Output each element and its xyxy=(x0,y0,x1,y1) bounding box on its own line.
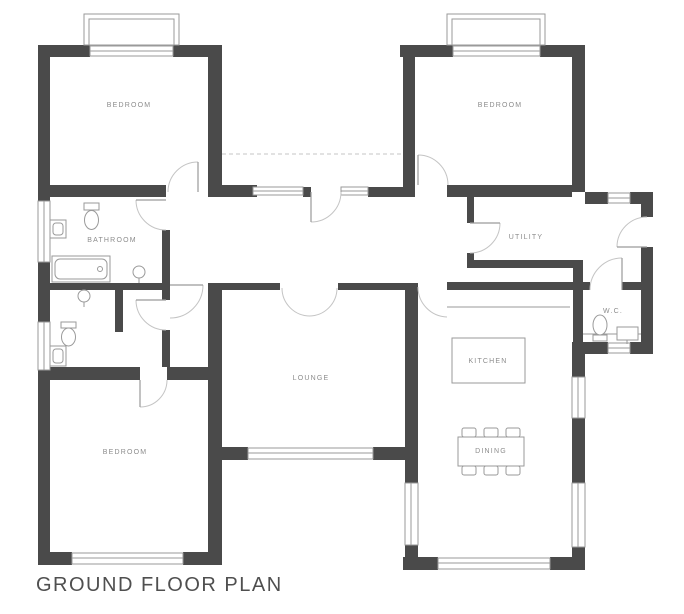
room-label-bedroom-top-left: BEDROOM xyxy=(107,102,152,109)
window xyxy=(90,46,173,56)
door xyxy=(136,200,166,230)
double-door xyxy=(282,288,337,316)
wall-segment xyxy=(641,264,653,342)
wash-basin xyxy=(50,346,66,366)
wall-segment xyxy=(447,282,573,290)
room-label-kitchen: KITCHEN xyxy=(468,358,507,365)
window xyxy=(453,46,540,56)
wall-segment xyxy=(38,45,90,57)
wall-segment xyxy=(208,185,257,197)
wall-segment xyxy=(38,370,50,565)
room-label-utility: UTILITY xyxy=(509,234,543,241)
wall-segment xyxy=(38,367,140,380)
wall-segment xyxy=(162,230,170,300)
window xyxy=(38,201,50,262)
door xyxy=(418,287,447,317)
wash-basin xyxy=(617,327,638,344)
wash-basin xyxy=(50,220,66,238)
wall-segment xyxy=(573,282,590,290)
door xyxy=(418,155,448,185)
wall-segment xyxy=(550,557,585,570)
wall-segment xyxy=(403,45,415,187)
door xyxy=(140,380,167,407)
bathtub xyxy=(52,256,110,282)
wall-segment xyxy=(208,283,222,565)
window xyxy=(405,483,418,545)
window xyxy=(572,377,585,418)
wall-segment xyxy=(208,283,280,290)
pedestal-basin xyxy=(133,266,145,283)
window xyxy=(248,448,373,459)
wall-segment xyxy=(38,45,50,201)
pedestal-basin xyxy=(78,290,90,307)
wall-segment xyxy=(368,187,415,197)
wall-segment xyxy=(622,282,641,290)
wall-segment xyxy=(167,367,222,380)
wall-segment xyxy=(38,262,50,322)
floor-plan-page: BEDROOM BEDROOM BEDROOM BATHROOM LOUNGE … xyxy=(0,0,684,614)
wall-segment xyxy=(572,418,585,483)
toilet xyxy=(61,322,76,346)
wall-segment xyxy=(630,342,653,354)
door xyxy=(168,162,198,192)
door xyxy=(617,217,647,247)
wall-segment xyxy=(467,260,583,268)
wall-segment xyxy=(573,260,583,354)
room-label-lounge: LOUNGE xyxy=(293,375,330,382)
wall-segment xyxy=(208,447,248,460)
plan-title: GROUND FLOOR PLAN xyxy=(36,574,283,597)
wall-segment xyxy=(38,552,72,565)
wall-segment xyxy=(373,447,418,460)
window xyxy=(38,322,50,370)
door xyxy=(170,285,203,318)
wall-segment xyxy=(338,283,418,290)
wall-segment xyxy=(38,185,166,197)
window xyxy=(608,193,630,203)
bay-window xyxy=(447,14,545,45)
floor-plan-drawing: BEDROOM BEDROOM BEDROOM BATHROOM LOUNGE … xyxy=(0,0,684,614)
wall-segment xyxy=(303,187,311,197)
toilet xyxy=(84,203,99,230)
room-label-bedroom-top-right: BEDROOM xyxy=(478,102,523,109)
window xyxy=(341,187,368,195)
window xyxy=(438,558,550,569)
window xyxy=(253,187,303,195)
wall-segment xyxy=(467,197,474,223)
wall-segment xyxy=(641,247,653,264)
door xyxy=(470,223,500,253)
window xyxy=(72,553,183,564)
wall-segment xyxy=(447,185,572,197)
bay-window xyxy=(84,14,179,45)
wall-segment xyxy=(405,283,418,447)
wall-segment xyxy=(50,283,162,290)
window xyxy=(572,483,585,547)
wall-segment xyxy=(641,192,653,217)
wall-segment xyxy=(162,330,170,367)
room-label-dining: DINING xyxy=(475,448,507,455)
room-label-bedroom-bottom-left: BEDROOM xyxy=(103,449,148,456)
wall-segment xyxy=(405,545,418,570)
wall-segment xyxy=(572,45,585,192)
door xyxy=(136,300,166,330)
wall-segment xyxy=(208,45,222,185)
wall-segment xyxy=(585,192,608,204)
room-label-bathroom: BATHROOM xyxy=(87,237,137,244)
wall-segment xyxy=(572,354,585,377)
toilet xyxy=(593,315,607,341)
wall-segment xyxy=(115,290,123,332)
window xyxy=(608,343,630,353)
door xyxy=(590,258,622,290)
room-label-wc: W.C. xyxy=(603,308,623,315)
door xyxy=(311,192,341,222)
